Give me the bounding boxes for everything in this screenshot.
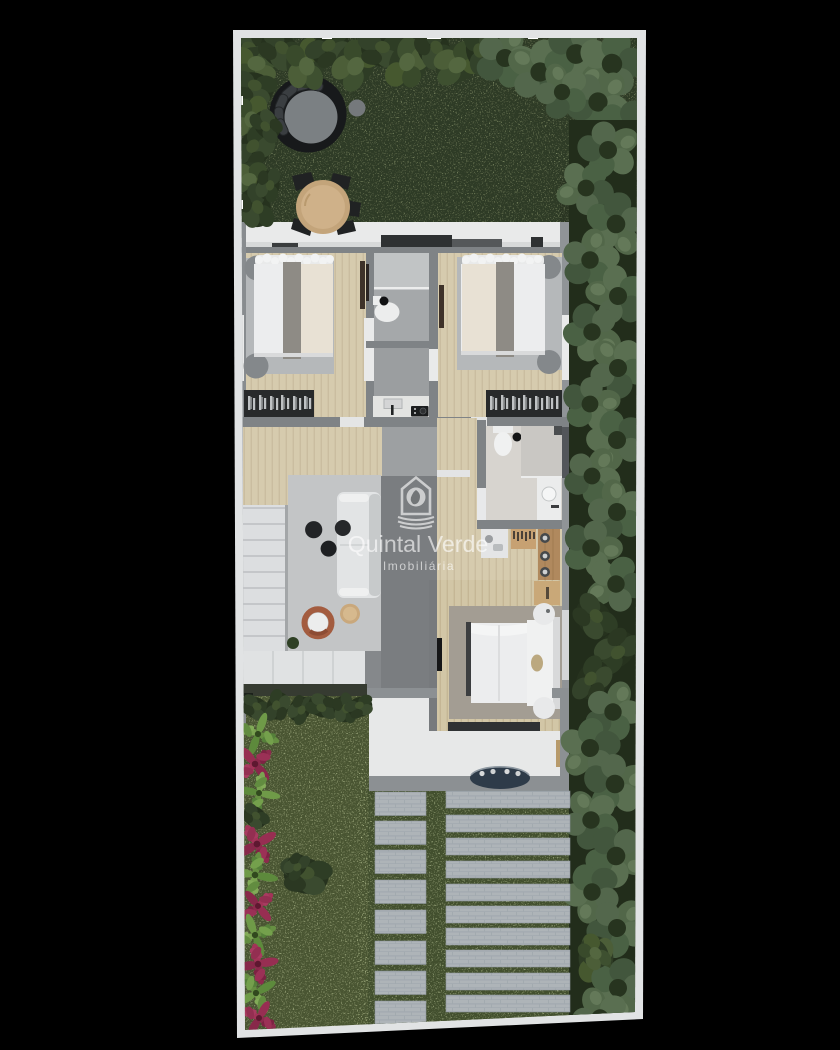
svg-text:Imobiliária: Imobiliária (383, 559, 455, 573)
svg-text:Quintal Verde: Quintal Verde (348, 531, 489, 557)
